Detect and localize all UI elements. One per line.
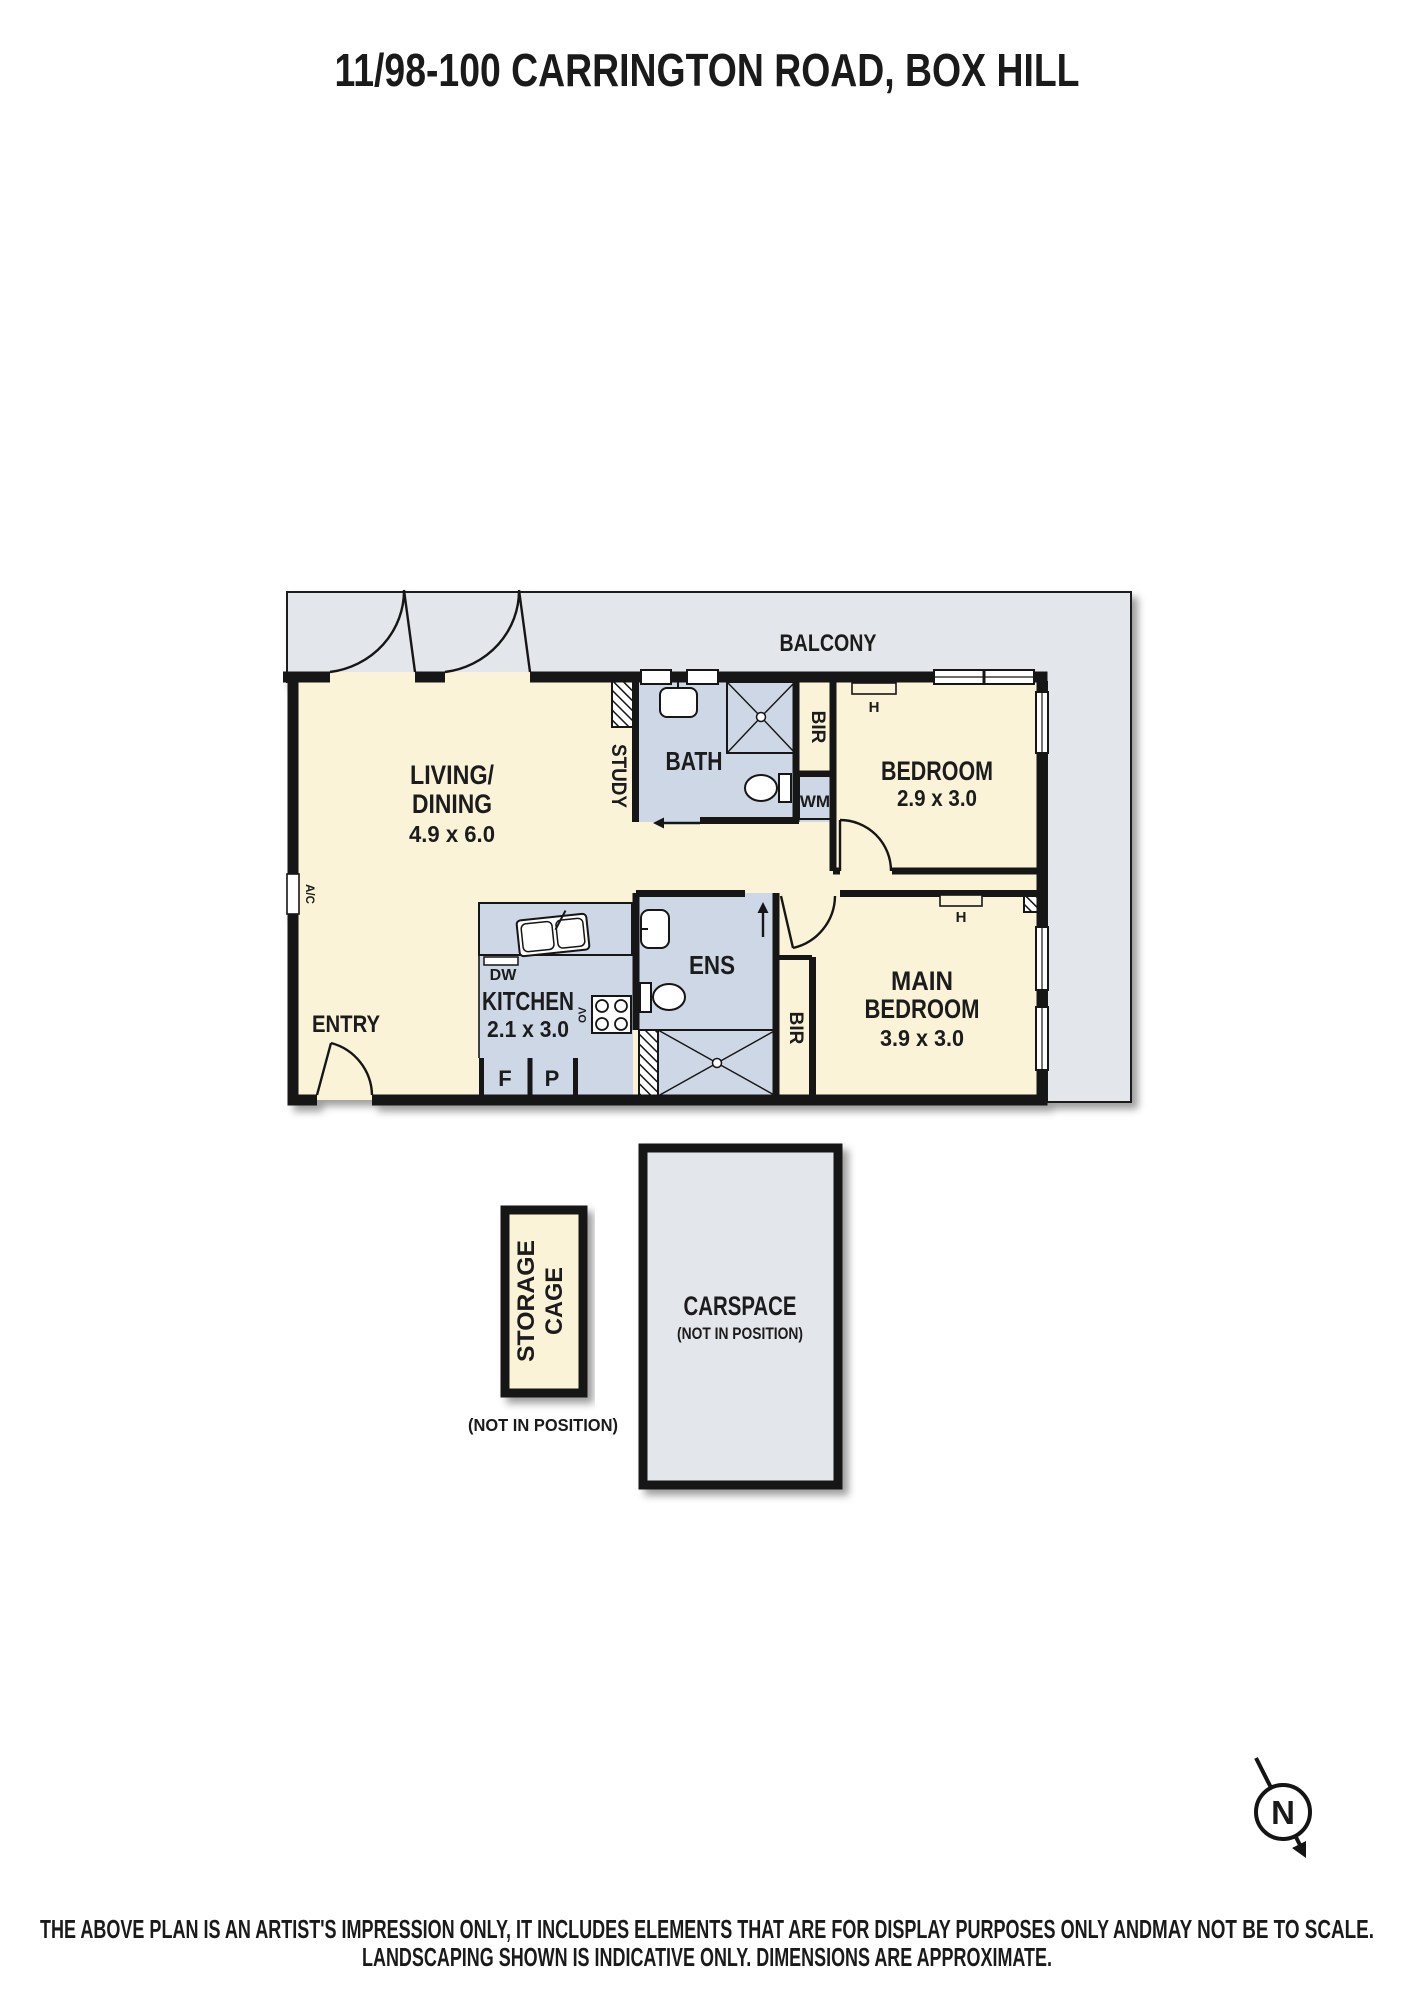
bedroom-heater-label: H: [869, 699, 880, 716]
page-title: 11/98-100 CARRINGTON ROAD, BOX HILL: [335, 44, 1080, 96]
bedroom-dims: 2.9 x 3.0: [897, 785, 977, 811]
apartment-plan: BALCONY LIVING/ DINING 4.9 x 6.0 STUDY B…: [283, 590, 1131, 1106]
ens-label: ENS: [689, 950, 735, 980]
north-label: N: [1271, 1794, 1295, 1831]
dishwasher: [484, 957, 518, 965]
heater-marker: [852, 683, 896, 694]
ens-drain: [713, 1059, 722, 1068]
main-bedroom-dims: 3.9 x 3.0: [880, 1025, 964, 1051]
fridge-label: F: [498, 1066, 511, 1091]
pantry-label: P: [545, 1066, 560, 1091]
floorplan-page: 11/98-100 CARRINGTON ROAD, BOX HILL: [0, 0, 1414, 2000]
bir-top-label: BIR: [807, 711, 828, 744]
ens-toilet: [653, 984, 685, 1010]
kitchen-dims: 2.1 x 3.0: [487, 1016, 569, 1042]
carspace-label: CARSPACE: [684, 1291, 797, 1321]
living-label-1: LIVING/: [410, 760, 494, 790]
bath-toilet: [745, 775, 777, 801]
disclaimer-line-1-scale: MAY NOT BE TO SCALE.: [1152, 1916, 1374, 1944]
bedroom-label: BEDROOM: [881, 756, 993, 786]
shower-drain: [757, 713, 766, 722]
balcony-label: BALCONY: [780, 630, 877, 657]
window: [687, 670, 718, 684]
ens-cistern: [640, 983, 651, 1012]
living-dims: 4.9 x 6.0: [409, 821, 495, 847]
carspace-box: CARSPACE (NOT IN POSITION): [643, 1148, 838, 1485]
oven-label: OV: [577, 1006, 589, 1023]
main-bedroom-heater-label: H: [956, 909, 967, 926]
storage-cage-box: STORAGE CAGE: [505, 1210, 583, 1393]
study-label: STUDY: [607, 744, 630, 808]
carspace-note: (NOT IN POSITION): [677, 1325, 803, 1343]
floorplan-canvas: 11/98-100 CARRINGTON ROAD, BOX HILL: [0, 0, 1414, 2000]
living-label-2: DINING: [412, 789, 492, 819]
main-bedroom-label-2: BEDROOM: [865, 994, 980, 1024]
storage-cage-note: (NOT IN POSITION): [468, 1415, 618, 1435]
hatch-pillar-study: [612, 678, 633, 727]
dw-label: DW: [490, 967, 518, 984]
north-arrow: N: [1256, 1758, 1310, 1858]
storage-cage-label-2: CAGE: [541, 1267, 568, 1335]
disclaimer-line-1: THE ABOVE PLAN IS AN ARTIST'S IMPRESSION…: [40, 1916, 1152, 1944]
bath-cistern: [779, 774, 791, 802]
window: [641, 670, 671, 684]
ac-label: A/C: [303, 884, 315, 904]
hatch-strip-ens: [639, 1030, 658, 1096]
ac-unit: [287, 874, 299, 914]
main-bedroom-label-1: MAIN: [891, 966, 953, 996]
wm-label: WM: [800, 792, 830, 811]
bir-main-label: BIR: [785, 1012, 806, 1045]
bath-label: BATH: [666, 746, 723, 776]
heater-marker: [940, 895, 982, 906]
kitchen-label: KITCHEN: [482, 986, 574, 1016]
entry-label: ENTRY: [312, 1011, 380, 1038]
bath-vanity: [660, 688, 697, 717]
storage-cage-label-1: STORAGE: [513, 1240, 540, 1362]
disclaimer-line-2: LANDSCAPING SHOWN IS INDICATIVE ONLY. DI…: [362, 1944, 1052, 1972]
